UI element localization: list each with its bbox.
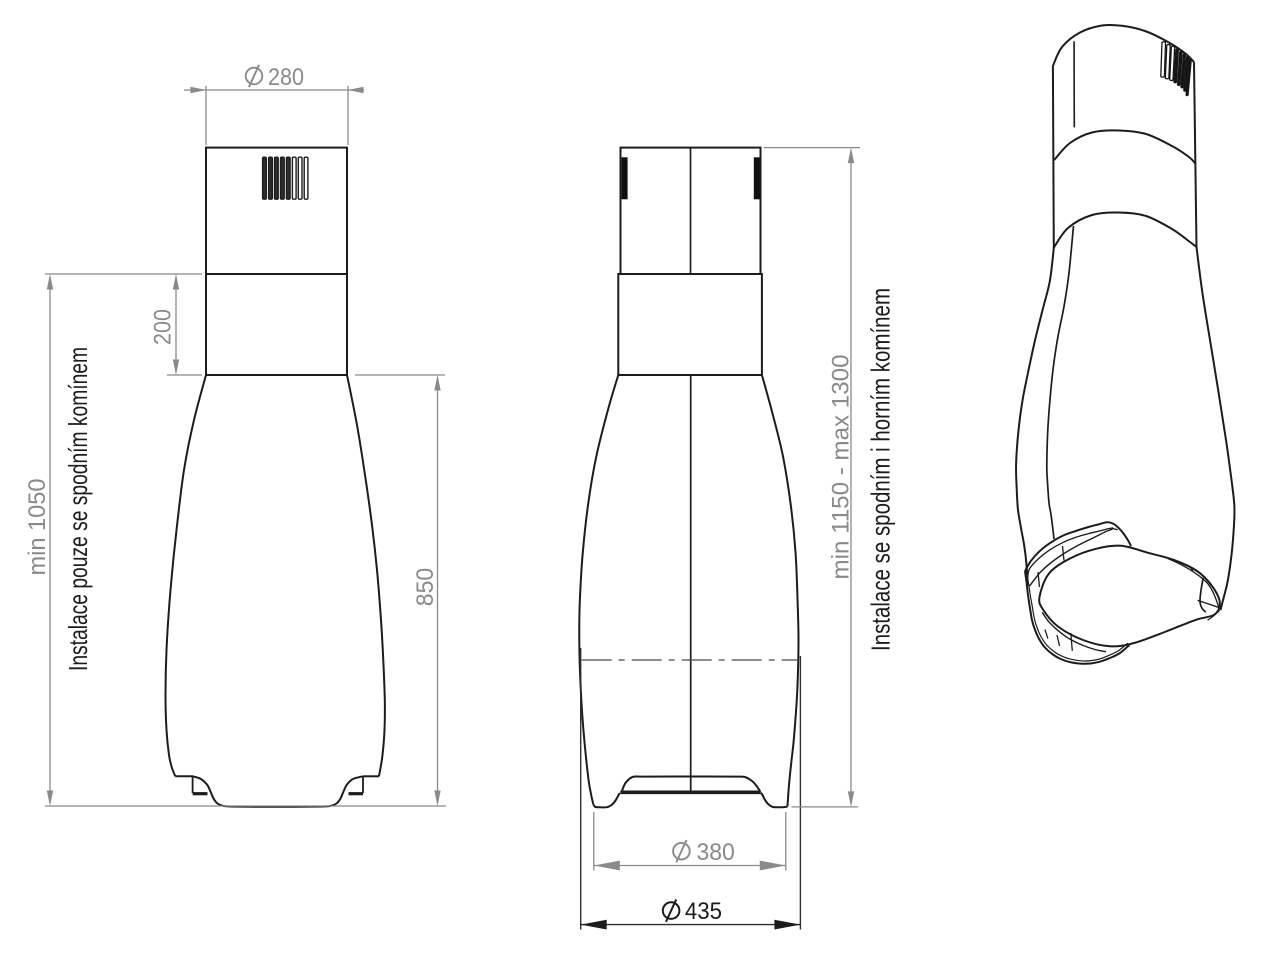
svg-text:200: 200 (150, 309, 177, 345)
svg-text:min 1050: min 1050 (24, 479, 51, 576)
svg-text:Instalace se spodním i horním: Instalace se spodním i horním komínem (866, 288, 896, 651)
svg-text:435: 435 (685, 898, 722, 925)
svg-text:850: 850 (412, 568, 439, 607)
svg-text:280: 280 (268, 64, 304, 91)
svg-text:380: 380 (697, 839, 735, 866)
svg-text:min 1150 - max 1300: min 1150 - max 1300 (828, 355, 855, 580)
svg-text:Instalace pouze se spodním kom: Instalace pouze se spodním komínem (63, 347, 93, 671)
